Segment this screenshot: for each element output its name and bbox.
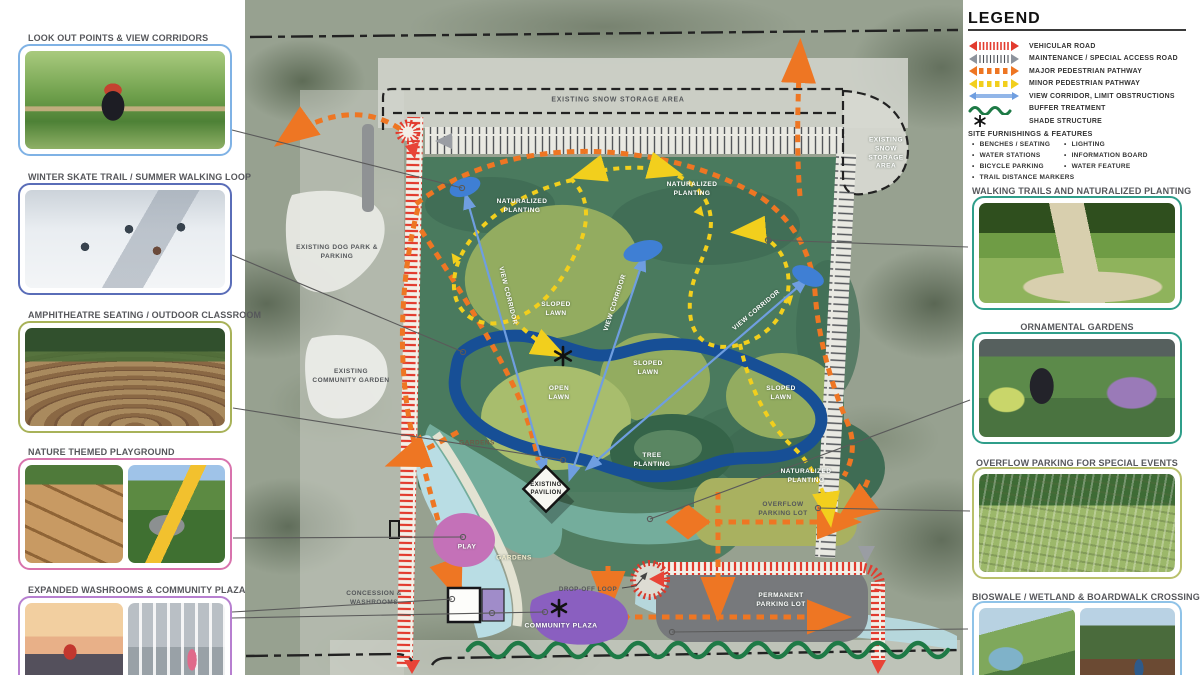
callout-box-washrooms[interactable] [18, 596, 232, 675]
ornamental-garden-photo [979, 339, 1175, 437]
callout-box-skate[interactable] [18, 183, 232, 295]
callout-box-walking-trails[interactable] [972, 196, 1182, 310]
community-plaza-area [530, 589, 628, 644]
callout-title-lookout: LOOK OUT POINTS & VIEW CORRIDORS [28, 33, 208, 43]
furnishing-item: INFORMATION BOARD [1064, 152, 1148, 159]
major-pedestrian-icon [968, 65, 1020, 77]
legend-divider [968, 29, 1186, 31]
vehicular-road-icon [968, 40, 1020, 52]
callout-box-playground[interactable] [18, 458, 232, 570]
callout-box-lookout[interactable] [18, 44, 232, 156]
legend-row-major-ped: MAJOR PEDESTRIAN PATHWAY [968, 65, 1142, 77]
walking-trail-photo [979, 203, 1175, 303]
park-master-plan-board: EXISTING SNOW STORAGE AREA EXISTING SNOW… [0, 0, 1200, 675]
splash-pad-photo [128, 603, 226, 675]
legend-row-maintenance: MAINTENANCE / SPECIAL ACCESS ROAD [968, 53, 1178, 65]
buffer-treatment-icon [968, 103, 1020, 115]
washroom-annex [482, 589, 504, 621]
play-area [433, 513, 495, 567]
overflow-parking-photo [979, 474, 1175, 572]
shade-structure-icon [968, 115, 1020, 127]
furnishing-item: BENCHES / SEATING [972, 141, 1050, 148]
north-parking-row [425, 127, 845, 154]
callout-box-amphitheatre[interactable] [18, 321, 232, 433]
legend-row-view-corridor: VIEW CORRIDOR, LIMIT OBSTRUCTIONS [968, 90, 1175, 102]
callout-title-playground: NATURE THEMED PLAYGROUND [28, 447, 175, 457]
boardwalk-photo [1080, 608, 1176, 675]
legend-row-vehicular: VEHICULAR ROAD [968, 40, 1096, 52]
winter-skate-trail-photo [25, 190, 225, 288]
legend-row-minor-ped: MINOR PEDESTRIAN PATHWAY [968, 78, 1140, 90]
plaza-lights-photo [25, 603, 123, 675]
slide-playground-photo [128, 465, 226, 563]
furnishings-heading: SITE FURNISHINGS & FEATURES [968, 129, 1093, 138]
concession-building [448, 588, 480, 622]
south-vehicular-road [656, 562, 866, 575]
callout-title-walking-trails: WALKING TRAILS AND NATURALIZED PLANTING [972, 186, 1182, 196]
minor-pedestrian-icon [968, 78, 1020, 90]
furnishing-item: TRAIL DISTANCE MARKERS [972, 174, 1074, 181]
road-crossing-burst [399, 123, 417, 141]
furnishing-item: WATER STATIONS [972, 152, 1040, 159]
dog-park-parking-strip [362, 124, 374, 212]
lookout-viewpoint-photo [25, 51, 225, 149]
callout-box-overflow[interactable] [972, 467, 1182, 579]
legend-title: LEGEND [968, 10, 1041, 28]
gray-arrow-road-end [858, 546, 875, 563]
furnishing-item: LIGHTING [1064, 141, 1105, 148]
amphitheatre-photo [25, 328, 225, 426]
callout-title-amphitheatre: AMPHITHEATRE SEATING / OUTDOOR CLASSROOM [28, 310, 261, 320]
callout-title-skate: WINTER SKATE TRAIL / SUMMER WALKING LOOP [28, 172, 251, 182]
callout-title-ornamental: ORNAMENTAL GARDENS [972, 322, 1182, 332]
furnishing-item: BICYCLE PARKING [972, 163, 1044, 170]
legend-row-shade: SHADE STRUCTURE [968, 115, 1102, 127]
wetland-photo [979, 608, 1075, 675]
view-corridor-icon [968, 90, 1020, 102]
callout-title-washrooms: EXPANDED WASHROOMS & COMMUNITY PLAZA [28, 585, 246, 595]
north-road-line [250, 30, 958, 37]
callout-box-ornamental[interactable] [972, 332, 1182, 444]
callout-box-bioswale[interactable] [972, 601, 1182, 675]
legend-row-buffer: BUFFER TREATMENT [968, 103, 1106, 115]
furnishing-item: WATER FEATURE [1064, 163, 1130, 170]
maintenance-road-icon [968, 53, 1020, 65]
log-playground-photo [25, 465, 123, 563]
